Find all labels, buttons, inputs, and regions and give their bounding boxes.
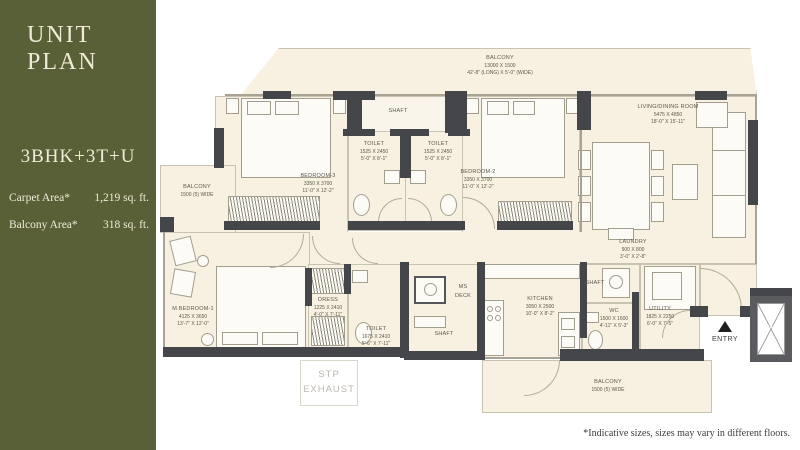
- wall-segment: [695, 91, 727, 100]
- wall-segment: [400, 136, 411, 178]
- label-balcony-left: BALCONY 1500 (5) WIDE: [167, 183, 227, 199]
- wall-segment: [580, 262, 587, 338]
- pillow: [513, 101, 535, 115]
- pillow: [275, 101, 299, 115]
- ac-outdoor-unit: [414, 316, 446, 328]
- label-bedroom-2: BEDROOM-2 3350 X 3700 11'-0" X 12'-2": [448, 168, 508, 192]
- wardrobe: [228, 196, 320, 223]
- wall-segment: [690, 306, 708, 317]
- wall-segment: [477, 262, 485, 360]
- stove-burner: [495, 315, 501, 321]
- kitchen-counter: [484, 264, 580, 279]
- lounge-chair: [170, 268, 196, 297]
- wall-segment: [577, 91, 591, 130]
- dining-table: [592, 142, 650, 230]
- washbasin: [384, 170, 400, 184]
- wall-segment: [263, 91, 291, 99]
- toilet-seat: [588, 330, 603, 350]
- stove-burner: [487, 315, 493, 321]
- kitchen-sink: [561, 318, 575, 330]
- toilet-seat: [440, 194, 457, 216]
- wall-segment: [224, 221, 320, 230]
- label-shaft-right: SHAFT: [747, 325, 795, 333]
- label-toilet-2: TOILET 1525 X 2450 5'-0" X 8'-1": [412, 140, 464, 164]
- label-balcony-bottom: BALCONY 1500 (5) WIDE: [578, 378, 638, 394]
- wall-segment: [560, 349, 704, 361]
- label-bedroom-3: BEDROOM-3 3350 X 3700 11'-0" X 12'-2": [288, 172, 348, 196]
- room-corridor: [310, 232, 580, 266]
- stp-line2: EXHAUST: [303, 384, 355, 395]
- wall-segment: [343, 129, 375, 136]
- label-kitchen: KITCHEN 3050 X 2500 10'-0" X 8'-2": [510, 295, 570, 319]
- wardrobe: [311, 268, 345, 294]
- wall-segment: [445, 91, 467, 133]
- pillow: [487, 101, 509, 115]
- label-ms-deck: MS DECK: [448, 283, 478, 300]
- nightstand: [226, 98, 239, 114]
- wall-line: [580, 130, 582, 232]
- washing-machine-door: [609, 275, 623, 289]
- stp-line1: STP: [318, 369, 339, 380]
- label-master-bedroom: M.BEDROOM-1 4125 X 3650 13'-7" X 12'-0": [164, 305, 222, 329]
- sofa-seam: [712, 150, 746, 151]
- window-line: [163, 232, 165, 356]
- dining-chair: [651, 150, 664, 170]
- label-living-dining: LIVING/DINING ROOM 5475 X 4850 18'-0" X …: [628, 103, 708, 127]
- stove-burner: [495, 306, 501, 312]
- entry-label: ENTRY: [712, 336, 738, 343]
- wall-segment: [404, 351, 482, 360]
- toilet-seat: [353, 194, 370, 216]
- dining-chair: [651, 176, 664, 196]
- sofa: [712, 112, 746, 238]
- dining-chair: [651, 202, 664, 222]
- label-utility: UTILITY 1825 X 2250 6'-0" X 7'-5": [632, 305, 688, 329]
- entry-arrow-icon: [718, 321, 732, 332]
- stove-burner: [487, 306, 493, 312]
- wall-segment: [160, 217, 174, 232]
- stp-exhaust-box: STP EXHAUST: [300, 360, 358, 406]
- wardrobe: [311, 316, 345, 346]
- sofa-seam: [712, 195, 746, 196]
- window-line: [484, 357, 562, 359]
- label-shaft-top: SHAFT: [368, 107, 428, 116]
- deck-unit-knob: [424, 283, 437, 296]
- wall-segment: [448, 129, 470, 136]
- label-toilet-1: TOILET 1525 X 2450 5'-0" X 8'-1": [348, 140, 400, 164]
- wardrobe: [498, 201, 572, 223]
- washbasin: [352, 270, 368, 283]
- wall-segment: [497, 221, 573, 230]
- label-dress: DRESS 1225 X 2410 4'-0" X 7'-11": [301, 296, 355, 320]
- floor-plan: STP EXHAUST ENTRY BALCONY 13000 X 1500 4…: [0, 0, 800, 450]
- window-line: [225, 94, 757, 96]
- label-balcony-top: BALCONY 13000 X 1500 42'-8" (LONG) X 5'-…: [380, 54, 620, 78]
- kitchen-sink: [561, 336, 575, 348]
- wall-segment: [214, 128, 224, 168]
- label-toilet-master: TOILET 1675 X 2410 5'-6" X 7'-11": [349, 325, 403, 349]
- label-wc: WC 1500 X 1600 4'-11" X 5'-3": [590, 307, 638, 331]
- wall-segment: [333, 91, 375, 100]
- label-laundry: LAUNDRY 900 X 800 3'-0" X 2'-8": [605, 238, 661, 262]
- washbasin: [410, 170, 426, 184]
- wall-segment: [390, 129, 429, 136]
- wall-segment: [748, 120, 758, 205]
- utility-sink: [652, 272, 682, 300]
- label-shaft-laundry: SHAFT: [583, 279, 607, 288]
- nightstand: [201, 333, 214, 346]
- wall-segment: [163, 347, 311, 357]
- side-table: [197, 255, 209, 267]
- nightstand: [466, 98, 479, 114]
- wall-segment: [344, 264, 351, 294]
- pillow: [262, 332, 298, 345]
- label-shaft-mid: SHAFT: [424, 330, 464, 339]
- footnote: *Indicative sizes, sizes may vary in dif…: [583, 428, 790, 439]
- coffee-table: [672, 164, 698, 200]
- nightstand: [333, 98, 346, 114]
- pillow: [247, 101, 271, 115]
- wall-segment: [348, 221, 465, 230]
- pillow: [222, 332, 258, 345]
